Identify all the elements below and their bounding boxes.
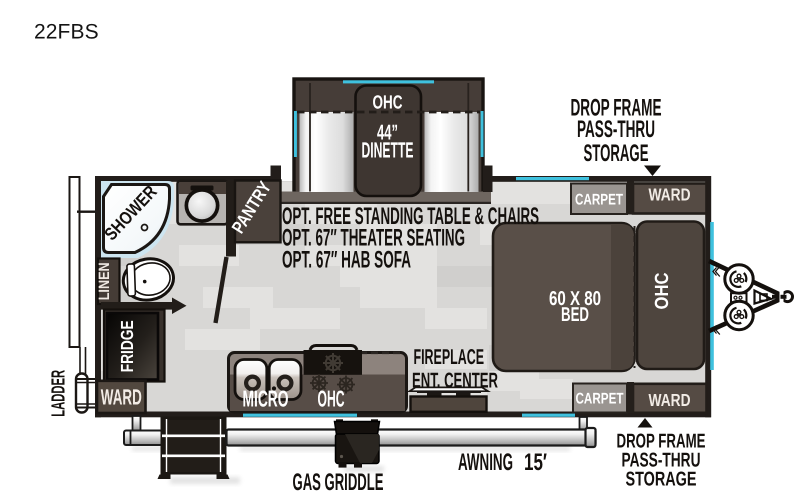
svg-text:AWNING: AWNING xyxy=(458,449,513,476)
svg-text:WARD: WARD xyxy=(649,390,691,410)
svg-text:FRIDGE: FRIDGE xyxy=(117,320,137,372)
svg-text:ENT. CENTER: ENT. CENTER xyxy=(412,368,498,392)
svg-text:WARD: WARD xyxy=(649,185,691,205)
svg-text:22FBS: 22FBS xyxy=(34,21,99,44)
svg-text:CARPET: CARPET xyxy=(576,391,624,408)
svg-text:MICRO: MICRO xyxy=(243,386,289,412)
svg-text:GAS GRIDDLE: GAS GRIDDLE xyxy=(293,469,384,496)
svg-text:LINEN: LINEN xyxy=(96,262,113,300)
svg-text:DINETTE: DINETTE xyxy=(362,138,414,163)
svg-text:OPT. 67″ HAB SOFA: OPT. 67″ HAB SOFA xyxy=(282,247,411,274)
svg-text:15′: 15′ xyxy=(524,449,547,476)
svg-text:BED: BED xyxy=(561,304,589,326)
svg-text:OHC: OHC xyxy=(373,93,403,114)
svg-text:OHC: OHC xyxy=(652,272,673,309)
svg-text:WARD: WARD xyxy=(101,385,142,410)
svg-text:PASS-THRU: PASS-THRU xyxy=(577,116,655,143)
svg-text:OHC: OHC xyxy=(318,386,345,412)
svg-text:LADDER: LADDER xyxy=(49,370,70,417)
svg-text:STORAGE: STORAGE xyxy=(626,468,697,490)
svg-text:STORAGE: STORAGE xyxy=(584,140,649,167)
svg-text:FIREPLACE: FIREPLACE xyxy=(414,345,485,369)
svg-text:CARPET: CARPET xyxy=(575,192,623,209)
